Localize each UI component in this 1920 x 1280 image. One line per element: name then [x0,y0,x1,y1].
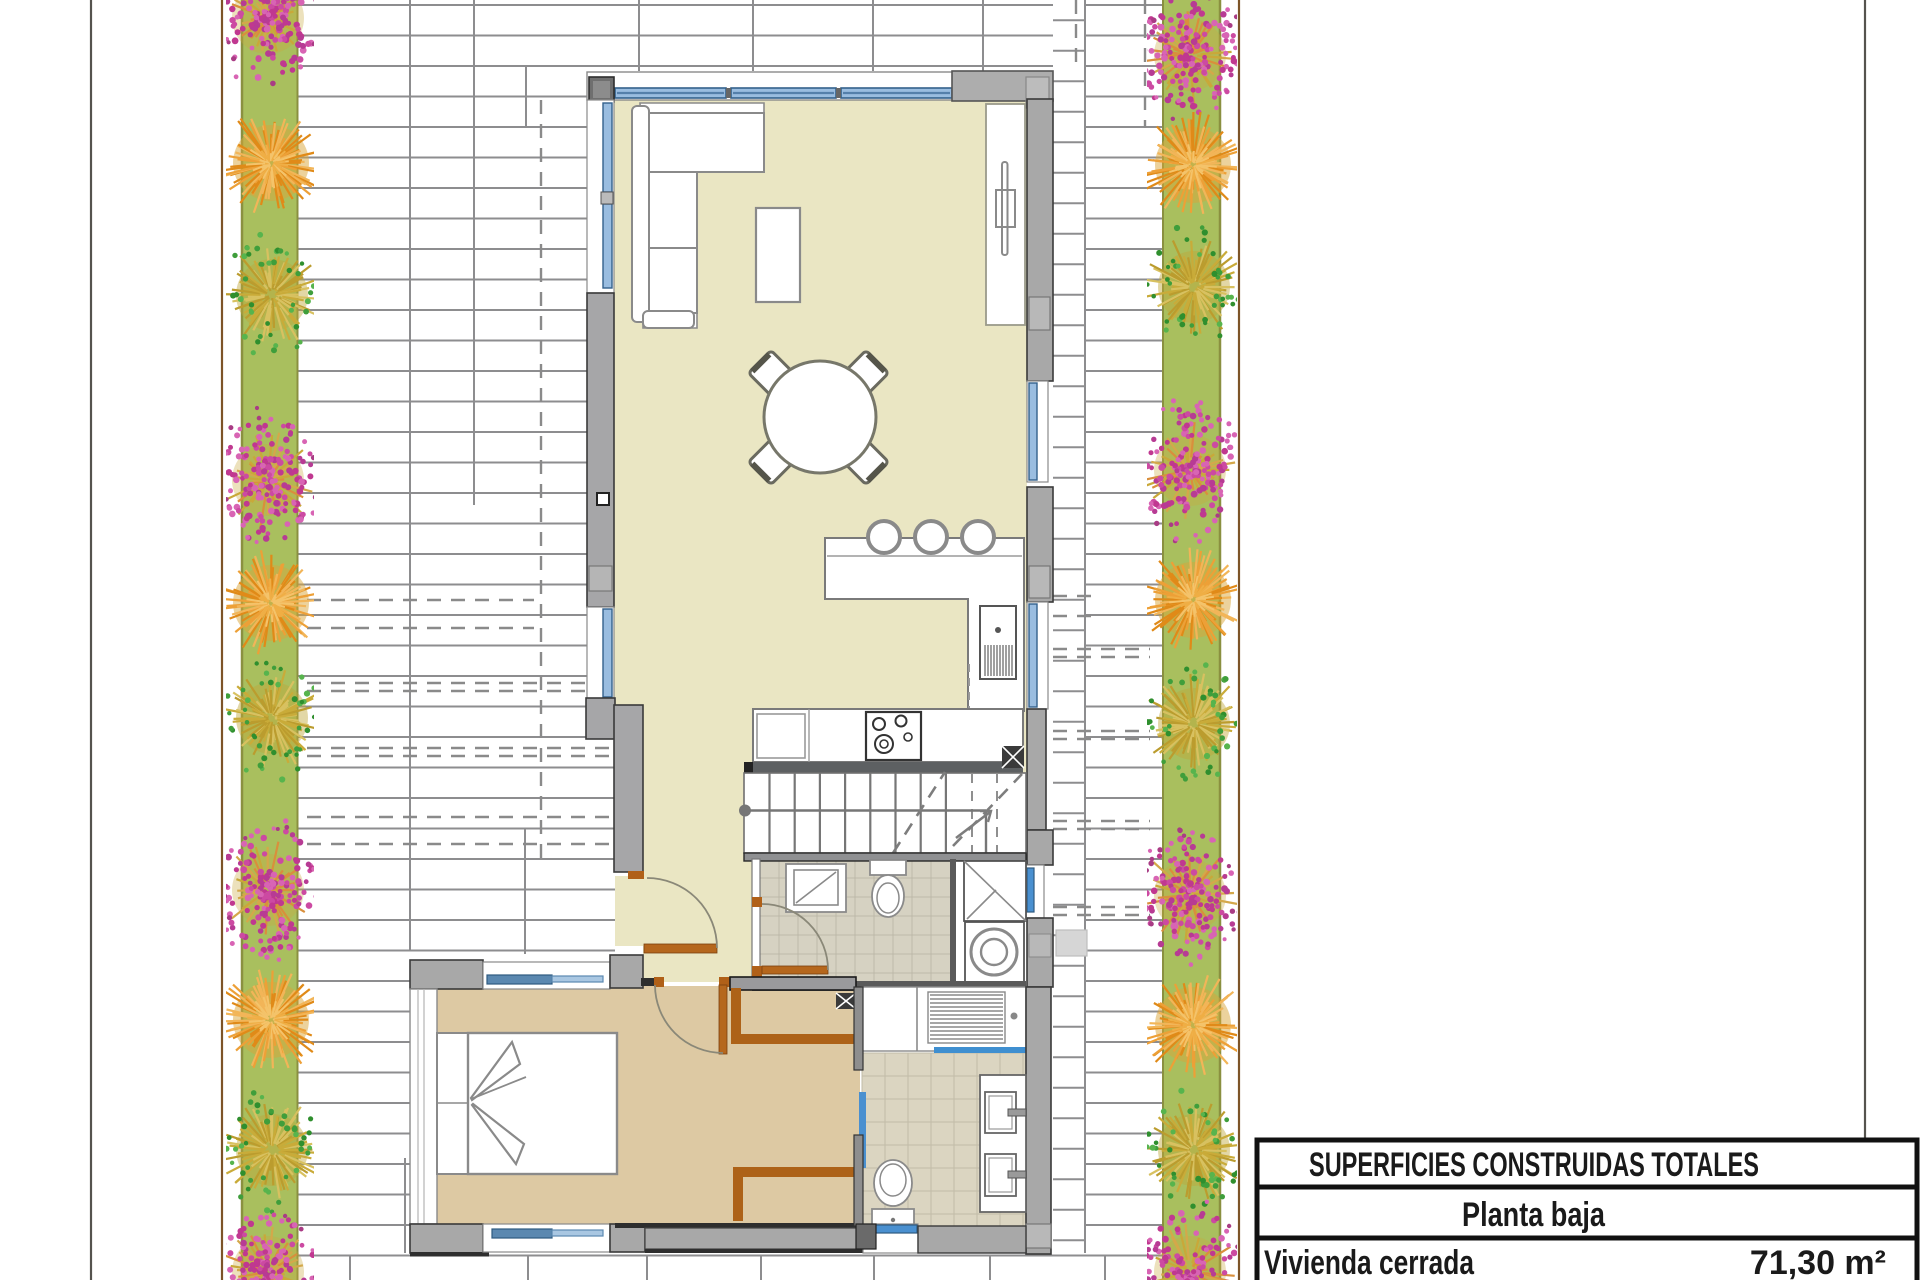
svg-text:SUPERFICIES CONSTRUIDAS TOTALE: SUPERFICIES CONSTRUIDAS TOTALES [1309,1146,1759,1184]
svg-text:71,30 m²: 71,30 m² [1750,1244,1886,1280]
svg-text:Vivienda cerrada: Vivienda cerrada [1264,1244,1475,1280]
svg-text:Planta baja: Planta baja [1462,1196,1606,1234]
